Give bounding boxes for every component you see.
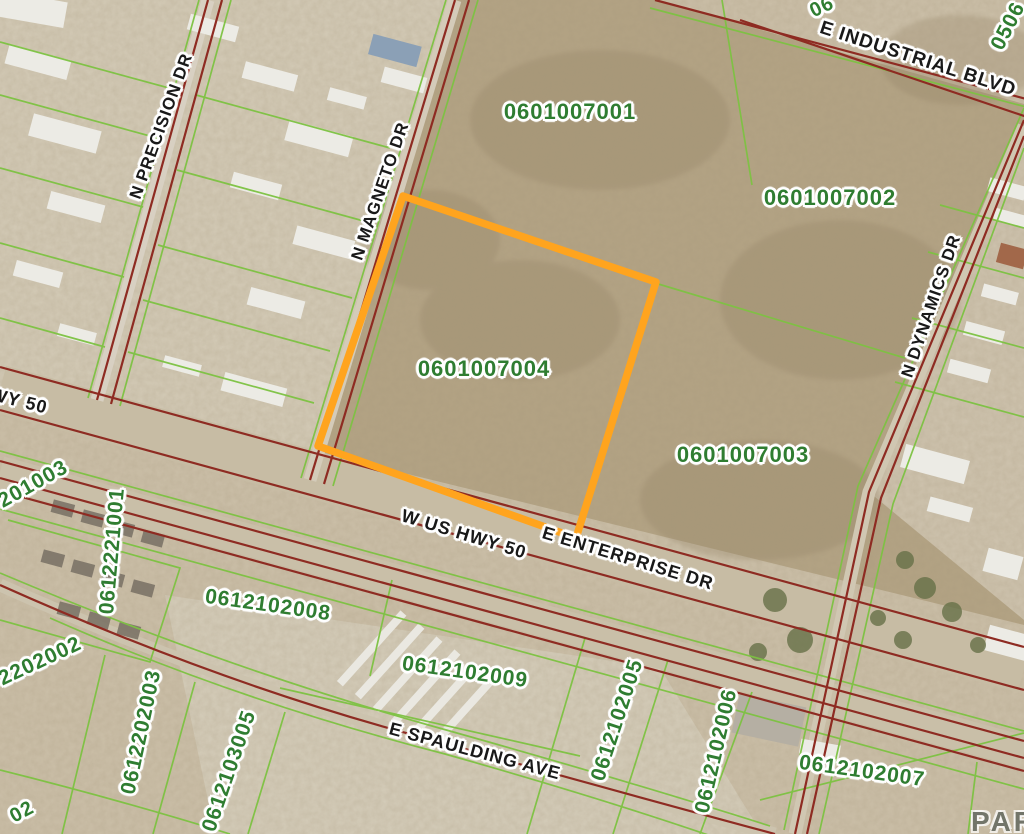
parcel-label-0601007004: 0601007004 bbox=[418, 358, 550, 380]
watermark-logo: PAR bbox=[971, 808, 1024, 834]
aerial-parcel-map[interactable]: E INDUSTRIAL BLVD HWY 50 N PRECISION DR … bbox=[0, 0, 1024, 834]
parcel-label-0601007002: 0601007002 bbox=[764, 187, 896, 209]
parcel-label-0601007001: 0601007001 bbox=[504, 101, 636, 123]
parcel-label-0601007003: 0601007003 bbox=[677, 444, 809, 466]
